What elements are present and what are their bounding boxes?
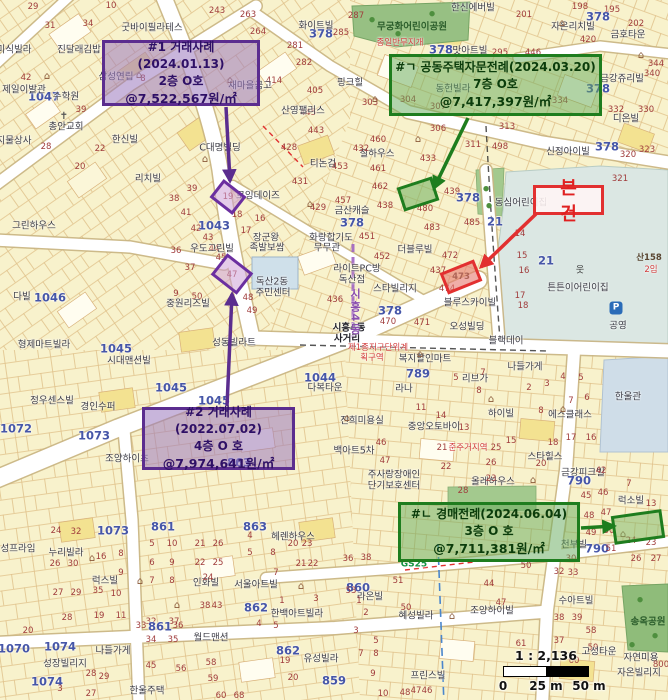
advisory-floor: 7층 O호 [392,76,599,93]
advisory-price: @7,417,397원/㎡ [392,93,599,111]
scale-tick-25: 25 m [529,679,562,693]
case1-floor: 2층 O호 [105,73,257,90]
subject-target-parcel [441,261,480,292]
auction-title: #ㄴ 경매전례(2024.06.04) [401,506,577,523]
subject-callout: 본 건 [533,185,604,215]
case1-price: @7,522,567원/㎡ [105,90,257,108]
auction-callout: #ㄴ 경매전례(2024.06.04) 3층 O 호 @7,711,381원/㎡ [398,502,580,562]
case2-floor: 4층 O 호 [145,438,292,455]
scale-bar-black-half [546,667,588,676]
map-stage: 2931341024326326428128242392822208414405… [0,0,668,700]
case2-target-parcel [213,255,251,292]
advisory-callout: #ㄱ 공동주택자문전례(2024.03.20) 7층 O호 @7,417,397… [389,54,602,116]
auction-target-parcel [612,511,663,543]
scale-bar: 1 : 2,136 0 25 m 50 m [503,648,589,693]
case1-callout: #1 거래사례(2024.01.13) 2층 O호 @7,522,567원/㎡ [102,40,260,106]
case1-title: #1 거래사례(2024.01.13) [105,39,257,73]
scale-tick-0: 0 [499,679,507,693]
case2-price: @7,974,641원/㎡ [145,455,292,473]
auction-price: @7,711,381원/㎡ [401,540,577,558]
scale-bar-graphic [503,666,589,677]
advisory-title: #ㄱ 공동주택자문전례(2024.03.20) [392,59,599,76]
auction-floor: 3층 O 호 [401,523,577,540]
case1-arrow [226,107,230,181]
advisory-target-parcel [398,178,437,209]
case2-title: #2 거래사례(2022.07.02) [145,404,292,438]
case1-target-parcel [212,181,245,213]
scale-ratio: 1 : 2,136 [503,648,589,663]
subject-arrow [481,214,536,267]
case2-arrow [227,294,232,406]
advisory-arrow [434,118,468,188]
auction-arrow [581,526,614,528]
scale-ticks: 0 25 m 50 m [503,679,589,693]
scale-tick-50: 50 m [572,679,605,693]
subject-label: 본 건 [543,174,601,226]
case2-callout: #2 거래사례(2022.07.02) 4층 O 호 @7,974,641원/㎡ [142,407,295,470]
